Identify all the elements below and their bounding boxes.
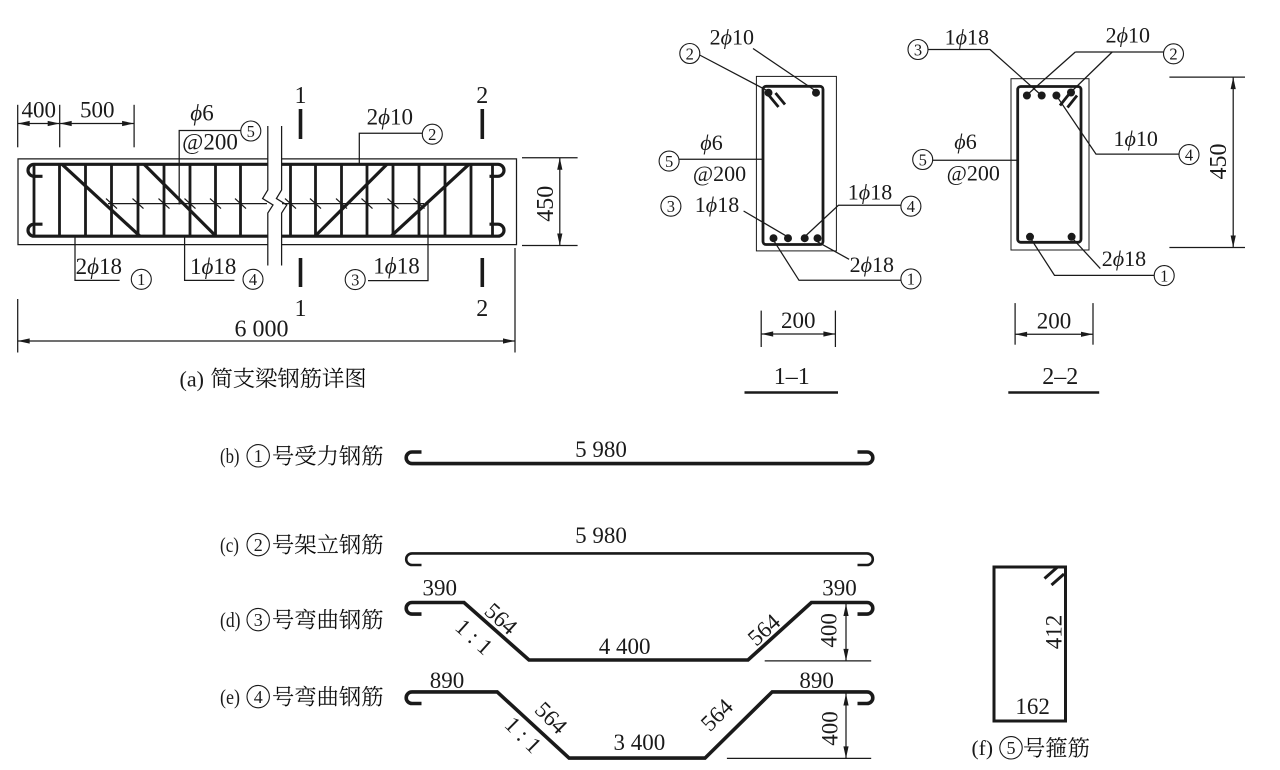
svg-text:1ϕ10: 1ϕ10	[1114, 126, 1158, 151]
svg-text:4: 4	[249, 270, 257, 289]
svg-text:1ϕ18: 1ϕ18	[373, 254, 419, 279]
svg-text:4: 4	[1185, 145, 1193, 164]
svg-text:1: 1	[1160, 266, 1168, 285]
svg-text:4 400: 4 400	[599, 634, 651, 659]
svg-text:2–2: 2–2	[1042, 364, 1078, 390]
svg-text:1: 1	[254, 446, 263, 466]
svg-text:@200: @200	[693, 161, 746, 186]
svg-text:4: 4	[254, 687, 263, 707]
svg-text:412: 412	[1042, 615, 1067, 650]
svg-text:@200: @200	[182, 130, 238, 155]
svg-text:200: 200	[1037, 308, 1072, 333]
svg-text:1: 1	[907, 270, 915, 289]
svg-text:162: 162	[1015, 694, 1050, 719]
svg-text:2: 2	[428, 125, 436, 144]
svg-text:3: 3	[254, 610, 263, 630]
svg-text:5: 5	[919, 150, 927, 169]
svg-text:1ϕ18: 1ϕ18	[190, 254, 236, 279]
svg-text:500: 500	[80, 98, 115, 123]
svg-text:2: 2	[476, 83, 488, 109]
svg-text:5: 5	[247, 122, 255, 141]
svg-text:4: 4	[907, 197, 915, 216]
svg-text:1ϕ18: 1ϕ18	[945, 25, 989, 50]
svg-text:(e): (e)	[220, 685, 240, 709]
svg-text:390: 390	[423, 576, 458, 601]
svg-text:ϕ6: ϕ6	[190, 101, 213, 126]
svg-text:5: 5	[1007, 738, 1016, 758]
svg-text:2: 2	[254, 535, 263, 555]
svg-text:390: 390	[822, 576, 857, 601]
svg-text:890: 890	[799, 668, 834, 693]
svg-text:2ϕ10: 2ϕ10	[1106, 23, 1150, 48]
svg-text:1: 1	[137, 270, 145, 289]
svg-text:200: 200	[781, 308, 816, 333]
svg-text:1: 1	[295, 296, 307, 322]
svg-text:400: 400	[21, 98, 56, 123]
svg-text:2ϕ18: 2ϕ18	[76, 254, 122, 279]
svg-text:3: 3	[914, 40, 922, 59]
svg-text:(d): (d)	[220, 608, 241, 632]
svg-text:2ϕ10: 2ϕ10	[367, 105, 413, 130]
svg-text:2: 2	[1169, 45, 1177, 64]
svg-text:(b): (b)	[220, 444, 240, 468]
svg-text:450: 450	[1206, 144, 1232, 180]
svg-text:2ϕ18: 2ϕ18	[850, 252, 894, 277]
svg-text:2ϕ10: 2ϕ10	[710, 25, 754, 50]
svg-text:ϕ6: ϕ6	[700, 130, 722, 155]
svg-text:400: 400	[817, 613, 842, 648]
svg-text:450: 450	[533, 186, 559, 222]
svg-text:5 980: 5 980	[575, 437, 627, 462]
svg-text:1ϕ18: 1ϕ18	[695, 192, 739, 217]
svg-text:2: 2	[476, 296, 488, 322]
svg-text:3 400: 3 400	[614, 730, 666, 755]
svg-text:6 000: 6 000	[235, 317, 289, 343]
svg-text:5: 5	[665, 152, 673, 171]
svg-text:3: 3	[351, 270, 359, 289]
svg-text:(a): (a)	[180, 366, 204, 391]
svg-text:1–1: 1–1	[774, 364, 810, 390]
svg-text:5 980: 5 980	[575, 523, 627, 548]
svg-text:(c): (c)	[220, 533, 239, 557]
svg-text:1ϕ18: 1ϕ18	[848, 180, 892, 205]
svg-text:400: 400	[818, 711, 843, 746]
svg-text:@200: @200	[947, 160, 1000, 185]
svg-text:2ϕ18: 2ϕ18	[1102, 246, 1146, 271]
svg-text:2: 2	[686, 44, 694, 63]
svg-text:ϕ6: ϕ6	[954, 129, 976, 154]
svg-text:890: 890	[430, 668, 465, 693]
svg-text:3: 3	[667, 197, 675, 216]
svg-text:(f): (f)	[972, 736, 993, 760]
svg-text:1: 1	[295, 83, 307, 109]
